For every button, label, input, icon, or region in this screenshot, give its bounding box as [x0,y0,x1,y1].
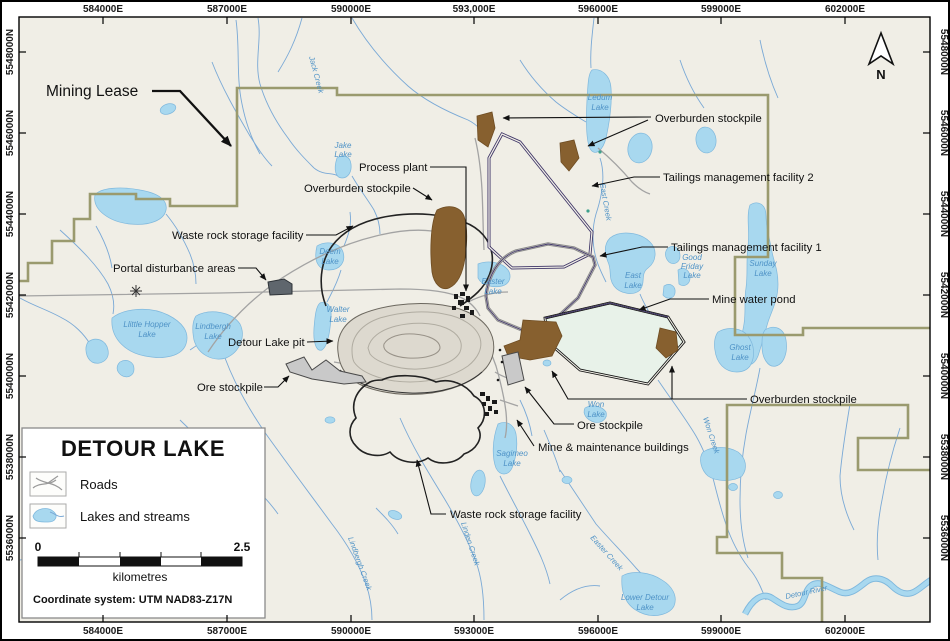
detour-lake-map: Jack Creek Jake Lake Ledum Lake Llittle … [0,0,950,641]
axis-left-3: 5542000N [5,272,16,318]
label-lower-detour-lake: Lower Detour [621,593,669,602]
label-little-hopper-lake: Llittle Hopper [123,320,170,329]
label-sagimeo-lake-2: Lake [503,459,521,468]
axis-top-4: 596000E [578,4,618,15]
coordinate-system: Coordinate system: UTM NAD83-Z17N [33,594,232,606]
label-jake-lake: Jake [334,141,352,150]
label-ghost-lake: Ghost [729,343,751,352]
axis-top-1: 587000E [207,4,247,15]
label-east-lake-2: Lake [624,281,642,290]
label-sunday-lake: Sunday [749,259,777,268]
legend-lakes-label: Lakes and streams [80,509,190,524]
label-mine-water-pond: Mine water pond [712,294,796,306]
axis-right-2: 5544000N [938,191,949,237]
scale-end: 2.5 [234,540,251,554]
label-walter-lake-2: Lake [329,315,347,324]
scale-start: 0 [35,540,42,554]
label-overburden-mid: Overburden stockpile [304,183,411,195]
label-tailings-facility-1: Tailings management facility 1 [671,242,822,254]
axis-top-3: 593,000E [453,4,496,15]
label-lower-detour-lake-2: Lake [636,603,654,612]
label-waste-rock-top: Waste rock storage facility [172,230,304,242]
label-little-hopper-lake-2: Lake [138,330,156,339]
label-ore-stockpile-left: Ore stockpile [197,382,263,394]
label-process-plant: Process plant [359,162,428,174]
label-ore-stockpile-right: Ore stockpile [577,420,643,432]
axis-bottom-5: 599000E [701,626,741,637]
map-page: Jack Creek Jake Lake Ledum Lake Llittle … [0,0,950,641]
axis-right-6: 5536000N [938,515,949,561]
map-canvas: Jack Creek Jake Lake Ledum Lake Llittle … [19,17,936,622]
label-mining-lease: Mining Lease [46,83,138,100]
axis-bottom-4: 596000E [578,626,618,637]
axis-right-1: 5546000N [938,110,949,156]
axis-left-4: 5540000N [5,353,16,399]
axis-left-1: 5546000N [5,110,16,156]
label-good-friday-lake: Good [682,253,702,262]
label-sunday-lake-2: Lake [754,269,772,278]
axis-bottom-3: 593000E [454,626,494,637]
label-overburden-top: Overburden stockpile [655,113,762,125]
axis-right-3: 5542000N [938,272,949,318]
label-deem-lake-2: Lake [321,257,339,266]
label-lindbergh-lake-2: Lake [204,332,222,341]
axis-top-0: 584000E [83,4,123,15]
legend-roads-label: Roads [80,477,118,492]
axis-left-2: 5544000N [5,191,16,237]
axis-bottom-6: 602000E [825,626,865,637]
label-mine-maintenance-buildings: Mine & maintenance buildings [538,442,689,454]
label-won-lake: Won [588,400,605,409]
label-east-lake: East [625,271,642,280]
roads-swatch [30,472,66,496]
axis-left-5: 5538000N [5,434,16,480]
axis-top-6: 602000E [825,4,865,15]
label-detour-lake-pit: Detour Lake pit [228,337,305,349]
label-easter-lake: Easter [481,277,504,286]
label-good-friday-lake-3: Lake [683,271,701,280]
label-sagimeo-lake: Sagimeo [496,449,528,458]
axis-bottom-0: 584000E [83,626,123,637]
label-overburden-bottom-right: Overburden stockpile [750,394,857,406]
axis-bottom-2: 590000E [331,626,371,637]
axis-top-5: 599000E [701,4,741,15]
legend: DETOUR LAKE Roads Lakes and streams 0 2.… [22,428,265,618]
label-ghost-lake-2: Lake [731,353,749,362]
axis-right-4: 5540000N [938,353,949,399]
label-ledum-lake: Ledum [588,93,613,102]
axis-left-6: 5536000N [5,515,16,561]
label-good-friday-lake-2: Friday [681,262,704,271]
label-deem-lake: Deem [319,247,341,256]
label-lindbergh-lake: Lindbergh [195,322,231,331]
label-jake-lake-2: Lake [334,150,352,159]
axis-top-2: 590000E [331,4,371,15]
scale-units: kilometres [113,570,168,584]
axis-left-0: 5548000N [5,29,16,75]
label-easter-lake-2: Lake [484,287,502,296]
axis-right-5: 5538000N [938,434,949,480]
label-ledum-lake-2: Lake [591,103,609,112]
label-tailings-facility-2: Tailings management facility 2 [663,172,814,184]
legend-title: DETOUR LAKE [61,436,225,461]
north-label: N [876,67,885,82]
axis-bottom-1: 587000E [207,626,247,637]
label-walter-lake: Walter [327,305,350,314]
label-won-lake-2: Lake [587,410,605,419]
label-portal-disturbance: Portal disturbance areas [113,263,236,275]
axis-right-0: 5548000N [938,29,949,75]
label-waste-rock-bottom: Waste rock storage facility [450,509,582,521]
